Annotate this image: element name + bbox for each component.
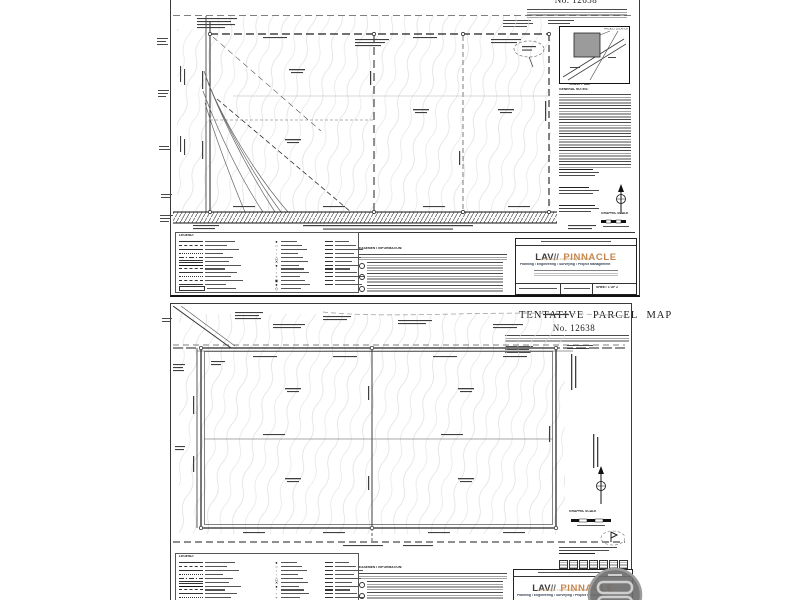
sheet1-sheet-label: SHEET 1 OF 2 (596, 286, 618, 289)
legend-row (179, 253, 267, 255)
title-block-top-cell (516, 239, 636, 246)
engineer-info-block (559, 205, 599, 214)
adjoiner-label (160, 215, 173, 223)
owner-info-block (559, 169, 599, 178)
brand-tagline: Planning • Engineering • Surveying • Pro… (520, 263, 610, 266)
easement-item (359, 285, 511, 292)
brand-subtitle: Consulting & Engineering Services (540, 258, 591, 261)
title-block: LAV// PINNACLE Consulting & Engineering … (515, 238, 637, 295)
legend-row: △ (274, 578, 318, 580)
legend-row: ▫ (274, 272, 318, 274)
legend-row: ● (274, 585, 318, 587)
sheet1-map-number: No. 12638 (523, 0, 629, 5)
project-location-parcel (574, 33, 600, 57)
easement-label: EASEMENT INFORMATION: (359, 247, 443, 250)
legend-box: LEGEND: ●○▫◦△✕●◦▫+◉●◇ (175, 553, 359, 600)
legend-row: △ (274, 257, 318, 259)
legend-box: LEGEND: ●○▫◦△✕●◦▫+◉●◇ (175, 232, 359, 293)
legend-row: ◉ (274, 280, 318, 282)
legend-row (179, 593, 267, 595)
adjoiner-label (157, 38, 168, 46)
north-arrow (617, 184, 626, 214)
graphic-scale-bar (601, 220, 629, 227)
legend-row (179, 288, 267, 290)
easement-item (359, 262, 511, 271)
easement-intro-text (359, 573, 507, 579)
legend-row: ● (274, 284, 318, 286)
legend-row (179, 249, 267, 251)
easement-intro-text (359, 254, 507, 260)
legend-row (179, 280, 267, 282)
legend-row (179, 589, 267, 591)
adjoiner-label (159, 146, 170, 152)
general-notes-label: GENERAL NOTES: (559, 88, 588, 91)
legend-row (179, 272, 267, 274)
legend-row (179, 264, 267, 266)
legend-row: ◦ (274, 253, 318, 255)
vicinity-map-caption: VICINITY MAP (569, 83, 619, 86)
photo-watermark-emblem (586, 566, 644, 600)
legend-row: ● (274, 562, 318, 564)
adjoiner-label (162, 318, 172, 324)
legend-row (179, 570, 267, 572)
legend-row: ◦ (274, 574, 318, 576)
legend-row: ▫ (274, 593, 318, 595)
legend-row (325, 241, 369, 243)
legend-label: LEGEND: (179, 234, 194, 237)
sheet2-graphic-scale-label: GRAPHIC SCALE (569, 510, 596, 513)
legend-row: ▫ (274, 249, 318, 251)
easement-information-block: EASEMENT INFORMATION: (359, 566, 511, 600)
north-arrow (597, 466, 606, 504)
easement-item (359, 592, 511, 600)
adjoiner-label (161, 194, 172, 200)
legend-row (179, 562, 267, 564)
general-notes-text (559, 94, 631, 168)
legend-rows: ●○▫◦△✕●◦▫+◉●◇ (179, 241, 369, 289)
legend-row (179, 574, 267, 576)
legend-row (179, 241, 267, 243)
easement-item (359, 581, 511, 590)
legend-row: ◇ (274, 288, 318, 290)
sheet1-graphic-scale-label: GRAPHIC SCALE (601, 212, 628, 215)
project-location-label: PROJECT LOCATION (604, 28, 616, 31)
legend-row: ✕ (274, 260, 318, 262)
drawn-by-cell (516, 284, 561, 294)
brand-subtitle: Consulting & Engineering Services (537, 589, 588, 592)
legend-row (179, 597, 267, 599)
legend-row (179, 260, 267, 262)
subdivider-info-block (559, 187, 599, 196)
graphic-scale-bar (571, 519, 611, 526)
easement-information-block: EASEMENT INFORMATION: (359, 247, 511, 292)
legend-row (179, 581, 267, 583)
sheet-1: No. 12638 (170, 0, 640, 297)
benchmark-symbol (601, 531, 625, 545)
sheet2-parcel-map-linework (173, 306, 625, 556)
legend-row: ◦ (274, 589, 318, 591)
legend-row (179, 585, 267, 587)
vicinity-map-roads (560, 27, 627, 81)
sheet-2: TENTATIVE PARCEL MAP No. 12638 (170, 303, 632, 600)
easement-item (359, 273, 511, 283)
legend-row: ◦ (274, 268, 318, 270)
legend-row: ○ (274, 245, 318, 247)
sheet-number-cell: SHEET 1 OF 2 (593, 284, 636, 294)
legend-row (179, 245, 267, 247)
legend-row (325, 562, 369, 564)
legend-row: + (274, 597, 318, 599)
legend-row: ○ (274, 566, 318, 568)
date-cell (561, 284, 593, 294)
legend-row (179, 566, 267, 568)
legend-row (179, 257, 267, 259)
legend-row: ▫ (274, 570, 318, 572)
legend-row: ● (274, 241, 318, 243)
title-block-bottom-row: SHEET 1 OF 2 (516, 283, 636, 294)
vicinity-map-box: PROJECT LOCATION (559, 26, 630, 84)
adjoiner-label (158, 90, 169, 98)
legend-row: ✕ (274, 581, 318, 583)
brand-address-text (534, 270, 618, 276)
legend-row: + (274, 276, 318, 278)
legend-row (179, 276, 267, 278)
legend-row (179, 578, 267, 580)
legend-label: LEGEND: (179, 555, 194, 558)
scanned-drawing-canvas: No. 12638 (0, 0, 800, 600)
road-strip (173, 212, 557, 223)
legend-rows: ●○▫◦△✕●◦▫+◉●◇ (179, 562, 369, 600)
easement-label: EASEMENT INFORMATION: (359, 566, 443, 569)
legend-row: ● (274, 264, 318, 266)
legend-row (179, 268, 267, 270)
